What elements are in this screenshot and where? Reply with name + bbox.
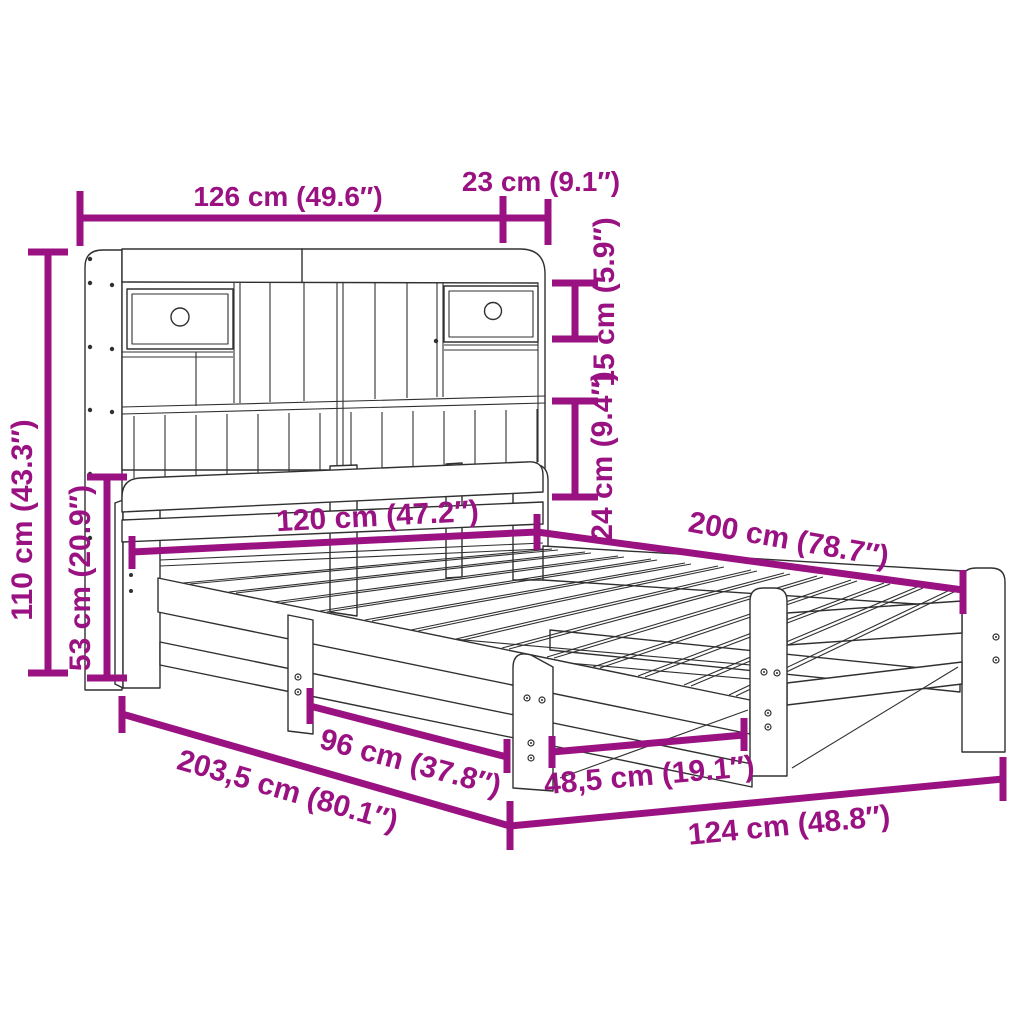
bed-frame-drawing bbox=[158, 546, 1005, 791]
footboard-end-rail-upper bbox=[787, 601, 962, 645]
bookcase-drawer-right bbox=[444, 286, 538, 342]
dim-top-shelf-height-label: 15 cm (5.9″) bbox=[588, 217, 621, 386]
bed-diagram-canvas: 126 cm (49.6″) 23 cm (9.1″) 15 cm (5.9″)… bbox=[0, 0, 1024, 1024]
dim-total-height-label: 110 cm (43.3″) bbox=[6, 419, 39, 620]
dim-headboard-panel-height-label: 53 cm (20.9″) bbox=[64, 485, 97, 671]
footboard-near-post bbox=[750, 588, 787, 776]
dimension-diagram: 126 cm (49.6″) 23 cm (9.1″) 15 cm (5.9″)… bbox=[0, 0, 1024, 1024]
bookcase-dowel bbox=[434, 339, 438, 343]
dim-lower-shelf-height-label: 24 cm (9.4″) bbox=[586, 371, 619, 540]
dim-headboard-depth-label: 23 cm (9.1″) bbox=[462, 166, 620, 197]
dim-headboard-depth-line bbox=[503, 199, 548, 245]
dim-headboard-width-label: 126 cm (49.6″) bbox=[193, 181, 382, 212]
bookcase-drawer-left bbox=[127, 289, 233, 349]
